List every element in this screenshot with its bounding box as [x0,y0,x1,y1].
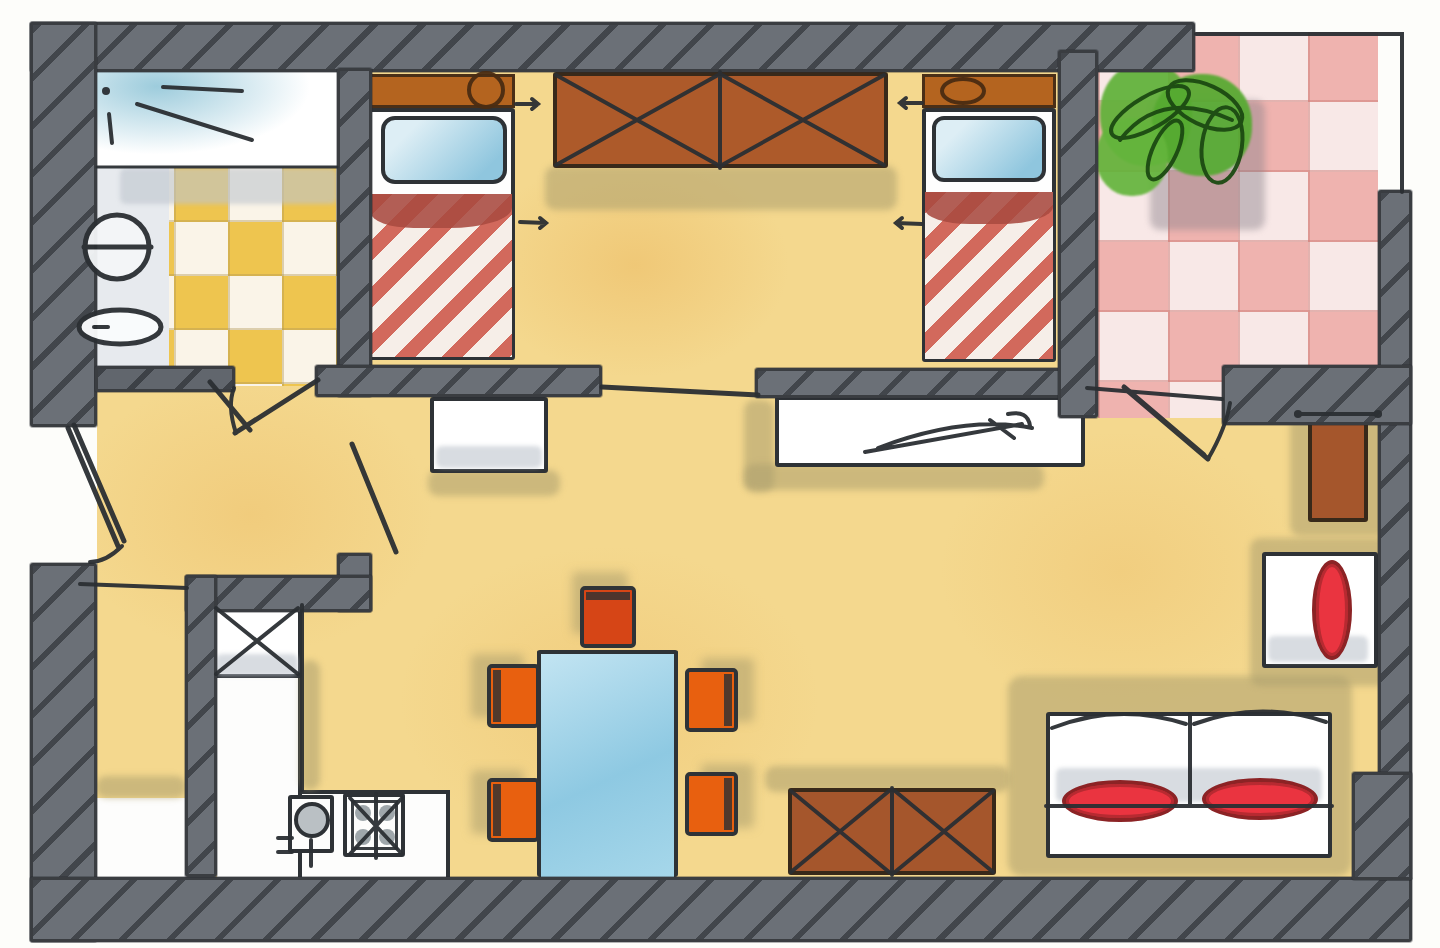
wall-left-upper [30,22,97,427]
sideboard [788,788,996,875]
small-cabinet [1308,418,1368,522]
sofa-cushion-right [1202,778,1318,820]
bed-left-pillow [381,116,507,184]
stove-burner-1 [355,805,371,821]
wardrobe-shadow [545,166,897,210]
wall-bedroom-balcony [1058,50,1098,418]
kitchen-cabinet-wash [216,654,298,676]
bed-right-headboard [922,74,1056,108]
wall-bottom [30,877,1412,942]
chair-left-1 [487,664,540,728]
desk-shadow-bottom [744,464,1044,490]
bathroom-tile-shadow [120,168,337,204]
wall-bathroom-bedroom [337,68,372,397]
desk [775,396,1085,467]
wall-top [30,22,1195,72]
sofa-cushion-left [1062,780,1178,822]
wall-kitchen-vertical [185,575,217,877]
wall-bedroom-south-left [315,365,602,397]
armchair-cushion [1312,560,1352,660]
chair-right-1 [685,668,738,732]
chair-left-2 [487,778,540,842]
wall-balcony-bottom [1222,365,1412,425]
plant-leaves-3 [1096,118,1168,196]
kitchen-counter-shadow [300,660,320,790]
floor-plan [0,0,1440,948]
wardrobe [553,72,888,168]
storage-floor-shadow [96,776,186,798]
dining-table [537,650,678,877]
stove-burner-4 [379,829,395,845]
chair-right-2 [685,772,738,836]
stove-burner-3 [355,829,371,845]
wall-bedroom-south-right [755,368,1087,398]
shelf-shadow [428,470,560,496]
bed-left-headboard [368,74,515,108]
shelf-wash [436,446,542,468]
chair-top [580,586,636,648]
bed-right-blanket-band [925,192,1053,224]
storage-floor-white [95,798,187,877]
wall-right-step [1352,772,1412,880]
bathroom-shower-wash [97,72,337,168]
wall-bathroom-bottom [95,366,235,392]
kitchen-sink-basin [294,802,330,838]
stove-burner-2 [379,805,395,821]
bed-right-pillow [932,116,1046,182]
